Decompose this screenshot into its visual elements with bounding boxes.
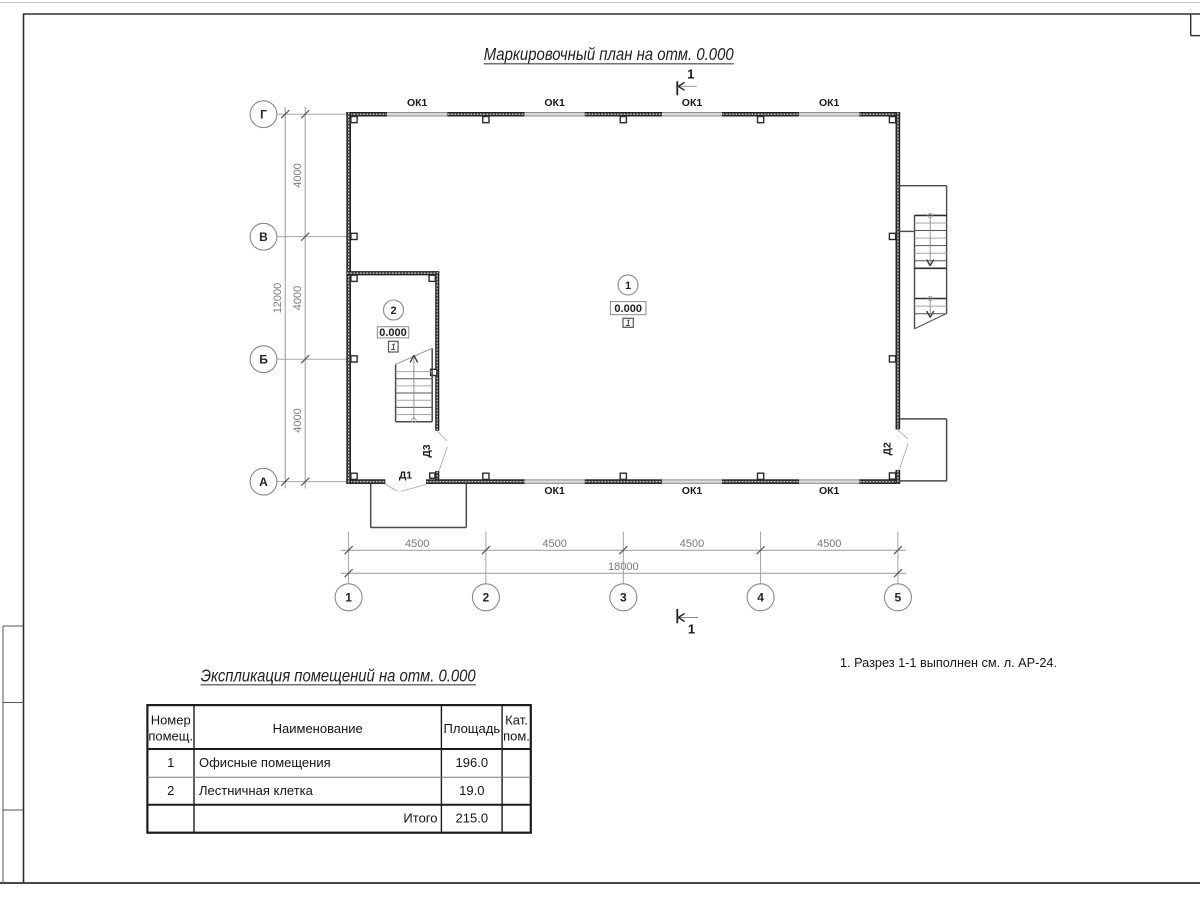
- svg-text:2: 2: [167, 783, 174, 798]
- svg-text:2: 2: [483, 591, 490, 605]
- svg-text:4000: 4000: [292, 286, 304, 310]
- svg-text:Д2: Д2: [882, 442, 894, 455]
- svg-text:Итого: Итого: [403, 811, 437, 826]
- svg-text:2: 2: [390, 305, 396, 317]
- svg-text:Наименование: Наименование: [273, 721, 363, 736]
- svg-text:3: 3: [620, 591, 627, 605]
- svg-text:4500: 4500: [542, 538, 566, 550]
- svg-text:4500: 4500: [405, 538, 429, 550]
- svg-text:Номер: Номер: [151, 713, 191, 728]
- svg-text:1. Разрез 1-1 выполнен см. л.: 1. Разрез 1-1 выполнен см. л. АР-24.: [840, 655, 1057, 670]
- svg-text:1: 1: [167, 755, 174, 770]
- svg-text:215.0: 215.0: [456, 811, 489, 826]
- svg-text:0.000: 0.000: [379, 327, 407, 339]
- svg-text:18000: 18000: [608, 561, 639, 573]
- svg-text:1: 1: [345, 591, 352, 605]
- svg-text:Кат.: Кат.: [505, 713, 528, 728]
- svg-text:ОК1: ОК1: [682, 485, 703, 497]
- svg-text:Б: Б: [259, 352, 268, 366]
- svg-text:Экспликация помещений на отм.: Экспликация помещений на отм. 0.000: [201, 666, 476, 686]
- svg-text:4: 4: [757, 591, 764, 605]
- svg-text:Лестничная клетка: Лестничная клетка: [199, 783, 314, 798]
- svg-text:Офисные помещения: Офисные помещения: [199, 755, 331, 770]
- svg-text:5: 5: [895, 591, 902, 605]
- svg-text:Г: Г: [260, 107, 267, 121]
- svg-text:1: 1: [625, 280, 631, 292]
- svg-text:ОК1: ОК1: [544, 97, 565, 109]
- svg-text:ОК1: ОК1: [819, 485, 840, 497]
- svg-text:1: 1: [687, 67, 694, 82]
- svg-text:1: 1: [625, 318, 630, 329]
- svg-text:Д3: Д3: [421, 444, 433, 457]
- svg-text:19.0: 19.0: [459, 783, 484, 798]
- svg-text:ОК1: ОК1: [407, 97, 428, 109]
- svg-text:ОК1: ОК1: [682, 97, 703, 109]
- svg-text:4500: 4500: [817, 538, 841, 550]
- svg-text:Д1: Д1: [399, 470, 412, 482]
- svg-text:Маркировочный план на отм. 0.0: Маркировочный план на отм. 0.000: [484, 44, 734, 64]
- svg-text:4500: 4500: [680, 538, 704, 550]
- svg-text:помещ.: помещ.: [148, 729, 193, 744]
- svg-text:12000: 12000: [272, 283, 284, 314]
- svg-text:Площадь: Площадь: [444, 721, 501, 736]
- svg-text:196.0: 196.0: [456, 755, 489, 770]
- svg-text:0.000: 0.000: [614, 303, 642, 315]
- svg-text:1: 1: [688, 622, 695, 637]
- svg-text:ОК1: ОК1: [544, 485, 565, 497]
- svg-text:1: 1: [391, 342, 396, 353]
- svg-text:пом.: пом.: [503, 729, 530, 744]
- svg-text:4000: 4000: [292, 408, 304, 432]
- svg-text:В: В: [259, 230, 268, 244]
- svg-text:ОК1: ОК1: [819, 97, 840, 109]
- svg-text:4000: 4000: [292, 163, 304, 187]
- svg-text:А: А: [259, 475, 268, 489]
